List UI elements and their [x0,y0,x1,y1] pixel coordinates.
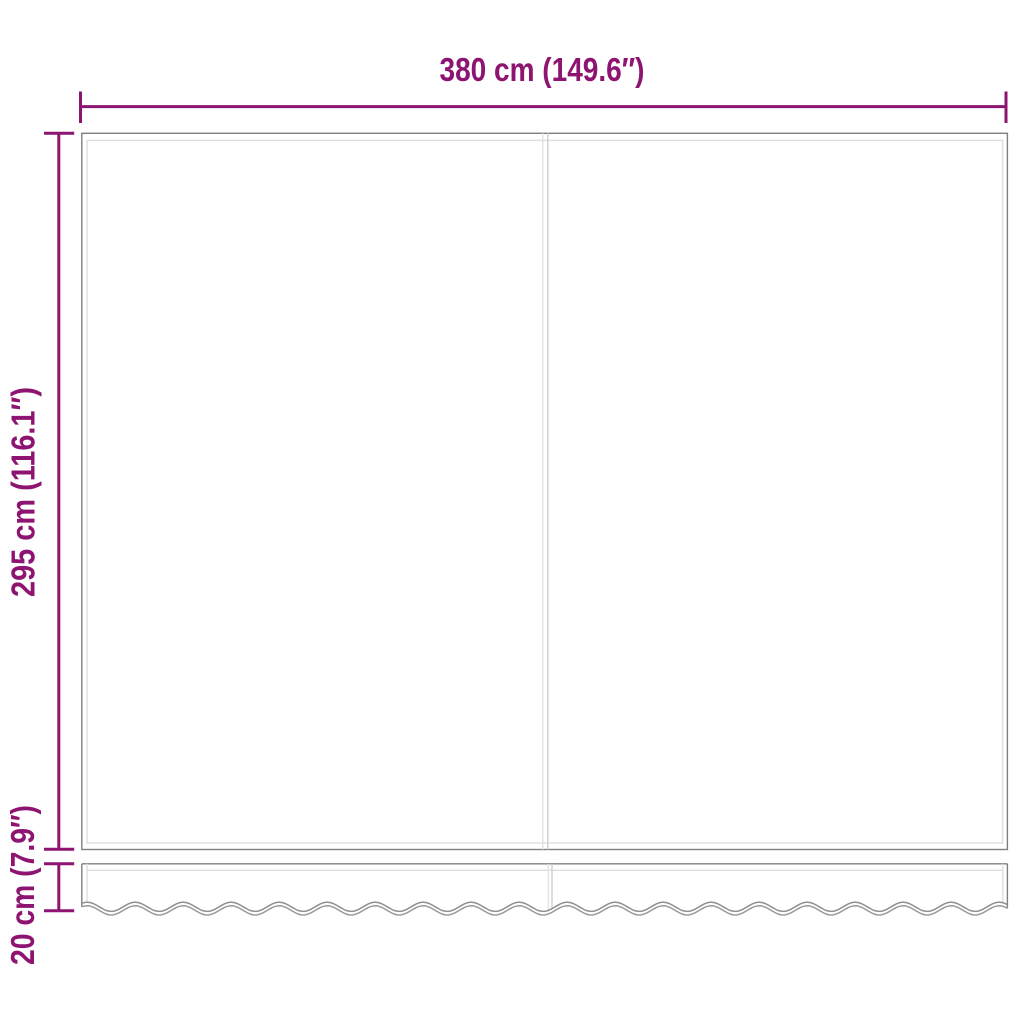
svg-text:295 cm (116.1″): 295 cm (116.1″) [5,387,42,597]
svg-text:20 cm (7.9″): 20 cm (7.9″) [4,805,41,965]
svg-text:380 cm (149.6″): 380 cm (149.6″) [440,51,645,88]
